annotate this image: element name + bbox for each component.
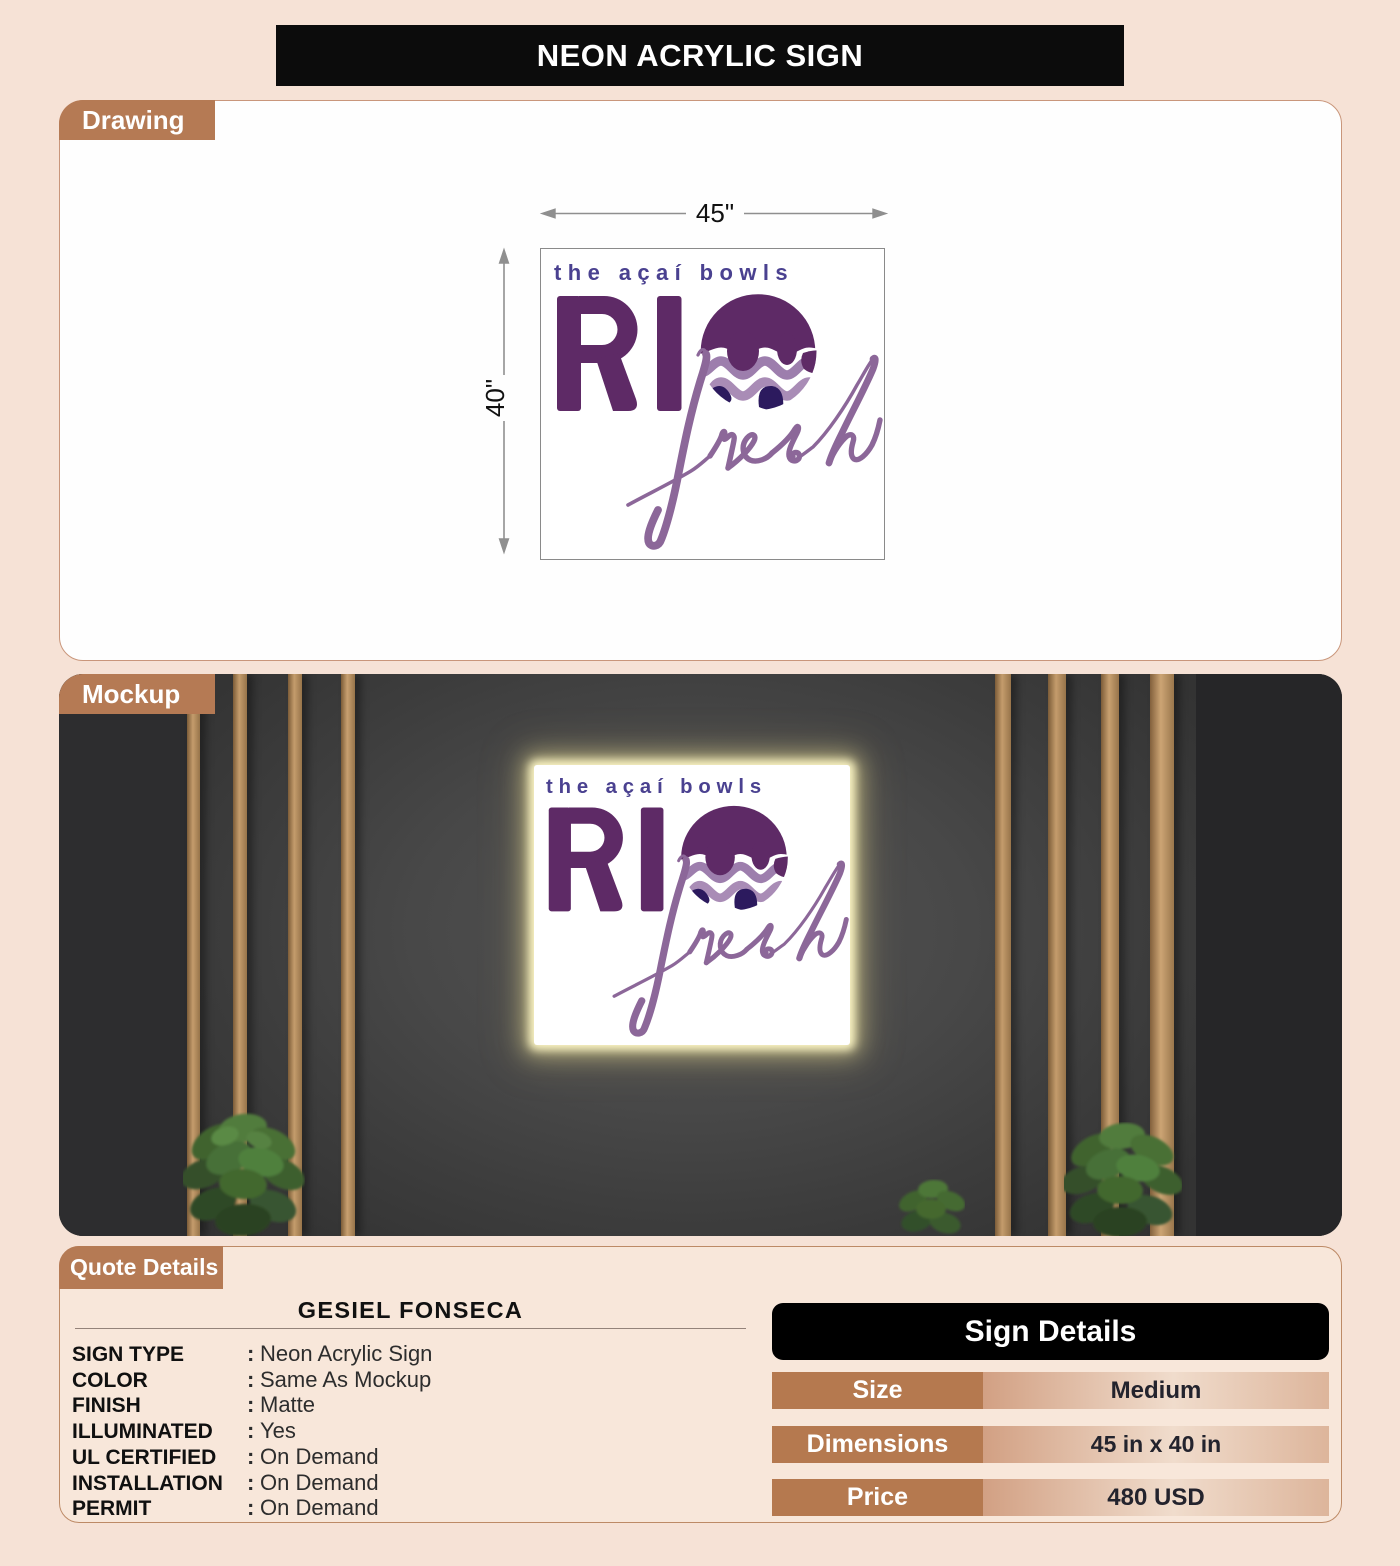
svg-text:40": 40" (480, 379, 510, 417)
svg-text:45": 45" (696, 198, 734, 228)
